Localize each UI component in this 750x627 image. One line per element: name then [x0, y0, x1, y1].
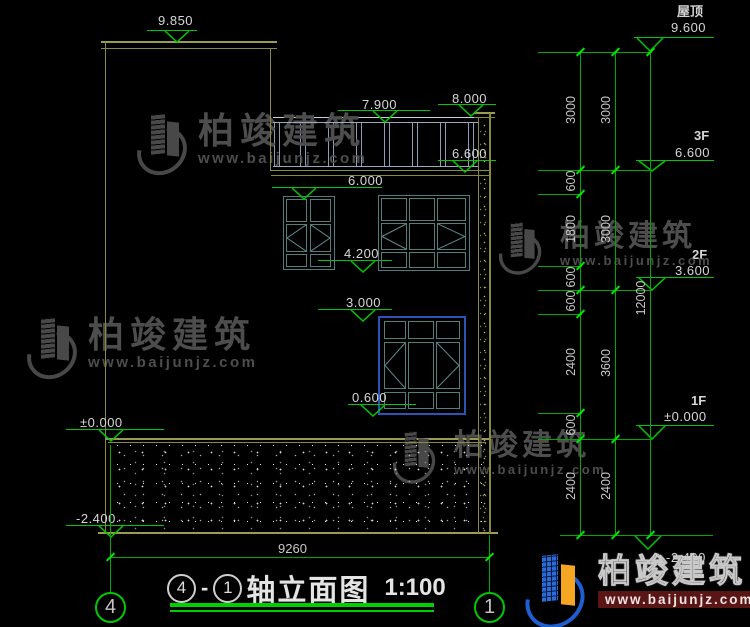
elevation-label: 0.600 — [352, 390, 387, 405]
foundation-bottom-line — [98, 532, 498, 534]
floor-elevation: 6.600 — [675, 145, 710, 160]
dimension-value: 3600 — [599, 333, 613, 393]
window-pane — [381, 198, 407, 221]
parapet-bottom-line — [101, 48, 277, 49]
elevation-label: 6.000 — [348, 173, 383, 188]
brand-watermark: 柏竣建筑 www.baijunjz.com — [524, 553, 750, 625]
building-icon — [511, 222, 523, 257]
foundation-hatch — [108, 444, 484, 531]
width-dimension-line — [110, 557, 489, 558]
building-icon — [524, 229, 534, 259]
dimension-value: 2400 — [564, 332, 578, 392]
title-dash: - — [201, 575, 208, 601]
window-pane — [286, 254, 307, 267]
grid-bubble-1: 1 — [474, 592, 505, 623]
elevation-label: 7.900 — [362, 97, 397, 112]
elevation-label: ±0.000 — [80, 415, 123, 430]
right-column-right-edge — [489, 113, 491, 533]
railing-bottom-rail — [273, 166, 478, 167]
window-pane — [437, 252, 466, 268]
watermark-logo-icon — [498, 221, 544, 274]
window-pane — [384, 321, 406, 339]
dimension-value: 2400 — [599, 456, 613, 516]
dimension-value: 3000 — [564, 80, 578, 140]
title-underline-thin — [170, 610, 434, 612]
elevation-label: 8.000 — [452, 91, 487, 106]
grid-extension-line — [110, 445, 111, 592]
elevation-label: 4.200 — [344, 246, 379, 261]
window-pane-casement — [286, 224, 307, 252]
title-underline-thick — [170, 603, 434, 607]
floor-label: 3F — [694, 128, 709, 143]
elevation-triangle-icon — [98, 526, 124, 538]
window-pane — [381, 252, 407, 268]
building-icon — [151, 113, 165, 154]
extension-line — [538, 52, 652, 53]
railing-post — [384, 123, 390, 166]
dimension-total-value: 12000 — [634, 268, 648, 328]
axis-circle-left: 4 — [167, 574, 196, 603]
building-icon — [561, 564, 575, 605]
watermark-url: www.baijunjz.com — [198, 150, 367, 167]
width-dimension-value: 9260 — [278, 541, 307, 556]
left-wall-line — [105, 41, 106, 533]
floor-elevation: 9.600 — [671, 20, 706, 35]
window-pane — [436, 392, 460, 409]
extension-line — [560, 535, 713, 536]
watermark-url: www.baijunjz.com — [88, 354, 257, 371]
extension-line — [538, 439, 652, 440]
window-pane-casement — [381, 223, 407, 250]
window-pane — [408, 321, 434, 339]
dimension-value: 3000 — [599, 80, 613, 140]
grid-extension-line — [489, 535, 490, 592]
window-pane — [408, 342, 434, 389]
tower-right-wall-line — [270, 48, 271, 171]
window-pane — [436, 321, 460, 339]
elevation-triangle-icon — [98, 430, 124, 442]
title-scale: 1:100 — [384, 574, 445, 602]
window-pane-casement — [436, 342, 460, 389]
column-cap-bottom — [474, 117, 495, 118]
dimension-chain-line — [615, 52, 616, 535]
window-pane — [409, 223, 435, 250]
floor-label: 1F — [691, 393, 706, 408]
extension-line — [538, 170, 652, 171]
window-pane-casement — [437, 223, 466, 250]
watermark-left: 柏竣建筑 www.baijunjz.com — [26, 316, 257, 378]
elevation-triangle-icon — [350, 310, 376, 322]
elevation-triangle-icon — [350, 261, 376, 273]
grid-bubble-label: 1 — [484, 596, 495, 619]
floor-elevation: 3.600 — [675, 263, 710, 278]
window-pane — [310, 254, 331, 267]
elevation-triangle-icon — [291, 188, 317, 200]
elevation-triangle-icon — [164, 31, 190, 43]
window-pane-casement — [310, 224, 331, 252]
elevation-drawing-canvas: 柏竣建筑 www.baijunjz.com 柏竣建筑 www.baijunjz.… — [0, 0, 750, 627]
watermark-name: 柏竣建筑 — [560, 221, 712, 253]
elevation-triangle-icon — [360, 405, 386, 417]
brand-name: 柏竣建筑 — [598, 553, 750, 589]
window-pane — [286, 199, 307, 222]
floor-elevation: ±0.000 — [664, 409, 707, 424]
dimension-value: 600 — [564, 395, 578, 455]
railing-post — [412, 123, 418, 166]
window-pane-casement — [384, 342, 406, 389]
building-icon — [41, 317, 55, 358]
building-icon — [167, 121, 179, 156]
window-pane — [409, 252, 435, 268]
elevation-triangle-icon — [372, 111, 398, 123]
elevation-label: 6.600 — [452, 146, 487, 161]
window-pane — [384, 392, 406, 409]
window-pane — [409, 198, 435, 221]
elevation-triangle-icon — [452, 161, 478, 173]
elevation-triangle-icon — [638, 426, 666, 440]
grid-bubble-label: 4 — [105, 596, 116, 619]
brand-logo-icon — [524, 553, 590, 625]
grid-bubble-4: 4 — [95, 592, 126, 623]
watermark-logo-icon — [136, 112, 190, 174]
foundation-top-line — [108, 442, 486, 443]
window-pane — [408, 392, 434, 409]
elevation-label: 9.850 — [158, 13, 193, 28]
elevation-label: 3.000 — [346, 295, 381, 310]
dimension-value: 3000 — [599, 199, 613, 259]
window-pane — [310, 199, 331, 222]
dimension-chain-line — [650, 52, 651, 535]
window-pane — [437, 198, 466, 221]
axis-circle-right: 1 — [213, 574, 242, 603]
watermark-name: 柏竣建筑 — [88, 316, 257, 354]
floor-label: 屋顶 — [677, 1, 703, 20]
dimension-chain-line — [580, 52, 581, 535]
building-icon — [57, 325, 69, 360]
dimension-value: 600 — [564, 271, 578, 331]
elevation-triangle-icon — [458, 105, 484, 117]
brand-url: www.baijunjz.com — [598, 591, 750, 608]
watermark-logo-icon — [26, 316, 80, 378]
watermark-name: 柏竣建筑 — [198, 112, 367, 150]
dimension-value: 2400 — [564, 456, 578, 516]
building-icon — [542, 554, 558, 602]
